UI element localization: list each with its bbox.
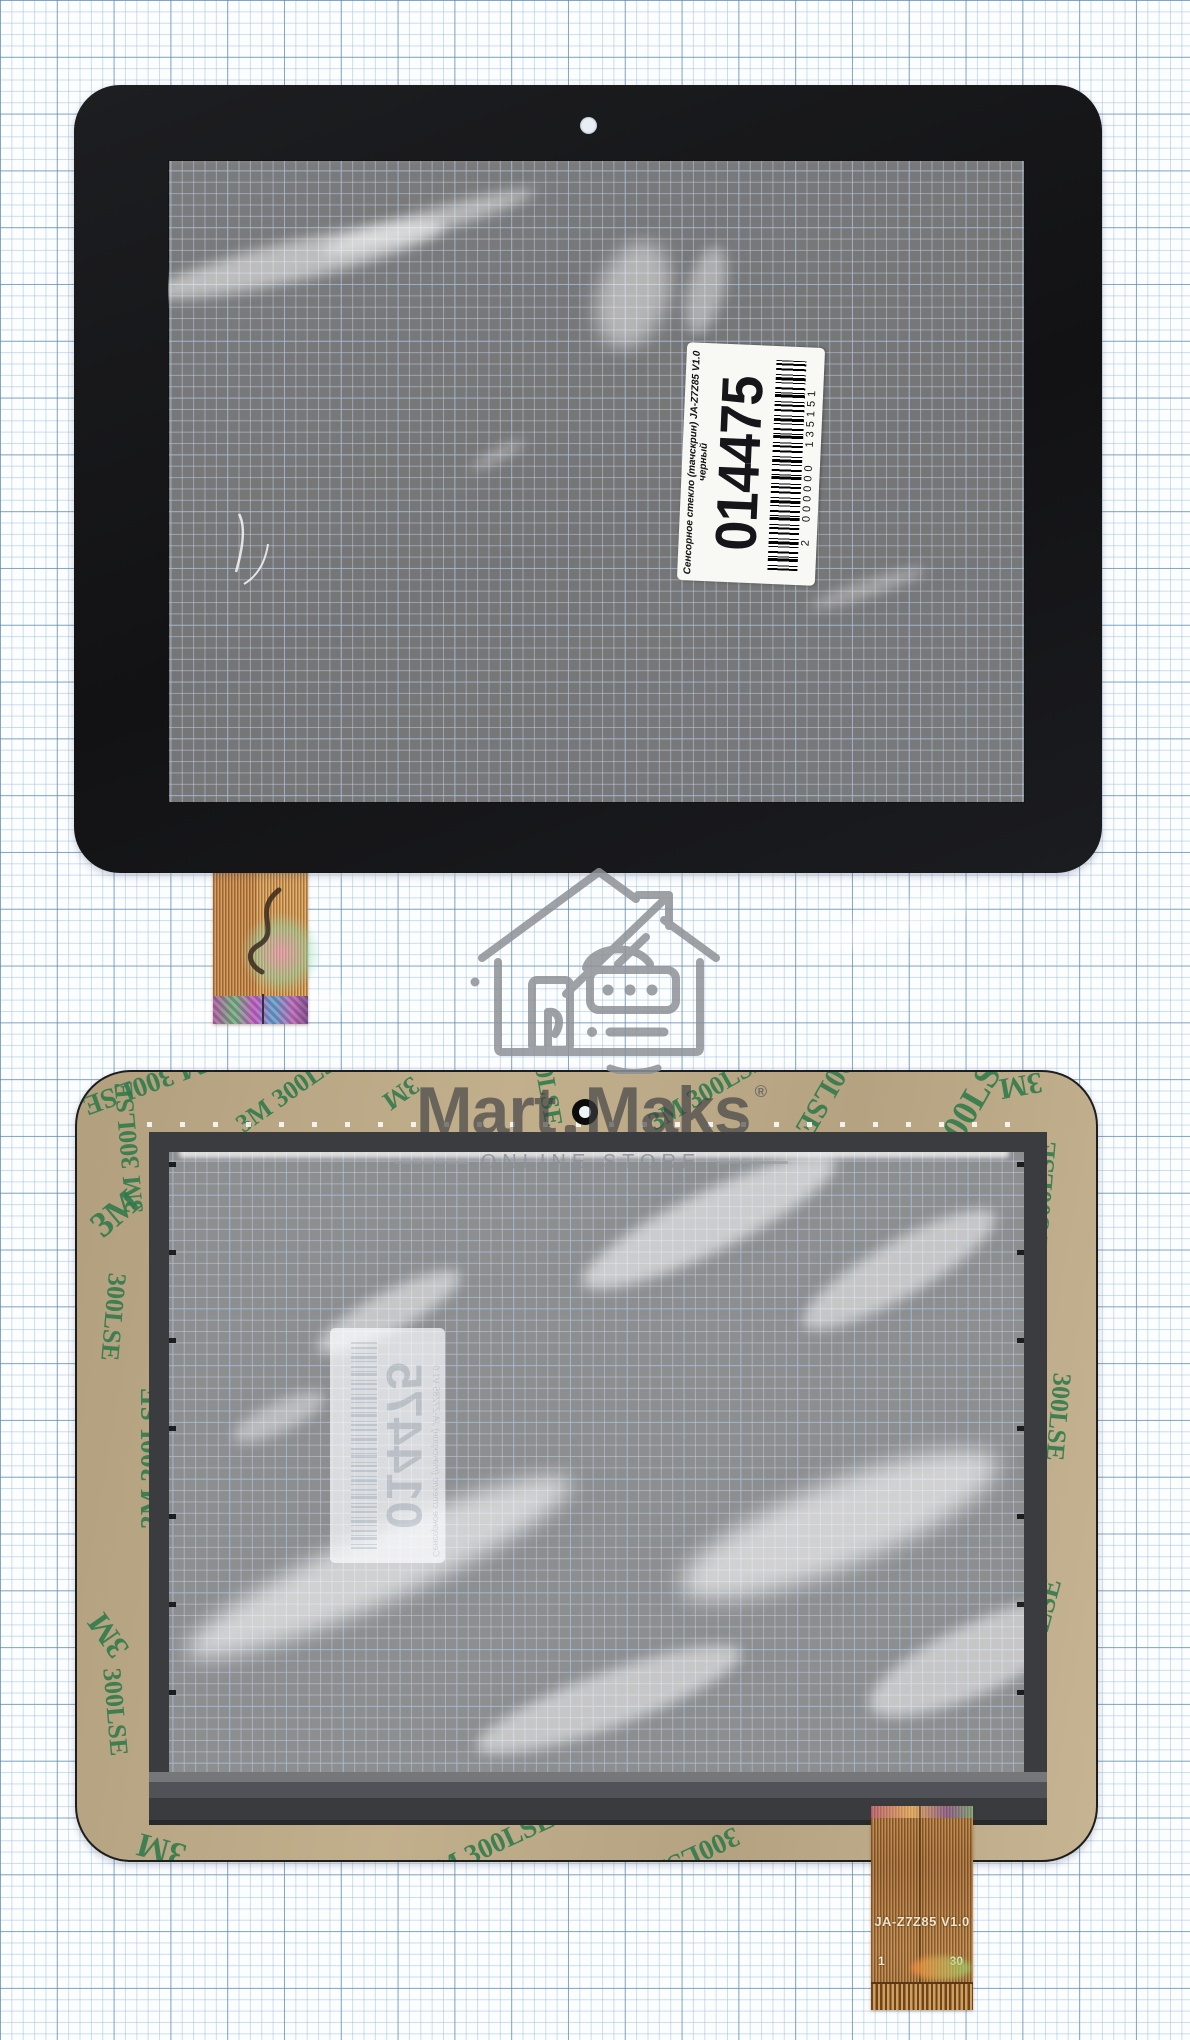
- tape-print: 300LSE: [96, 1667, 134, 1757]
- tape-print: 300LSE: [645, 1819, 745, 1862]
- connector-split: [262, 994, 264, 1024]
- tape-print: 3M 300LSE: [230, 1070, 355, 1139]
- cable-trace-squiggle: [231, 886, 301, 981]
- reflection-streak: [319, 180, 537, 264]
- front-flex-cable: [213, 858, 308, 1024]
- inventory-sticker-mirrored: Сенсорное стекло (тачскрин) JA-Z7Z85 V1.…: [330, 1328, 445, 1563]
- martmaks-house-icon: [468, 862, 730, 1074]
- cable-crease: [919, 1806, 921, 2010]
- reflection-streak: [665, 1421, 1012, 1627]
- product-photo-canvas: Сенсорное стекло (тачскрин) JA-Z7Z85 V1.…: [0, 0, 1190, 2040]
- touchscreen-front-panel: [74, 85, 1102, 873]
- tape-print: 3M: [996, 1070, 1045, 1106]
- scratch-reflection: [228, 510, 274, 605]
- inventory-sticker: Сенсорное стекло (тачскрин) JA-Z7Z85 V1.…: [677, 342, 825, 586]
- barcode-mirrored: [351, 1342, 377, 1549]
- reflection-streak: [678, 242, 735, 338]
- camera-hole-back: [572, 1099, 598, 1125]
- sticker-number-mirrored: 014475: [377, 1334, 431, 1557]
- electrode-ticks-right: [1017, 1162, 1024, 1762]
- sensor-frame: [149, 1132, 1047, 1825]
- reflection-streak: [570, 1152, 848, 1310]
- reflection-streak: [468, 1626, 750, 1772]
- reflection-streak: [800, 875, 999, 965]
- reflection-streak: [227, 1382, 330, 1451]
- sticker-title-mirrored: Сенсорное стекло (тачскрин) JA-Z7Z85 V1.…: [431, 1334, 441, 1557]
- glass-edge-glare: [179, 1152, 1009, 1158]
- tape-print: 300LSE: [94, 1272, 132, 1362]
- tape-print: 3M: [80, 1606, 137, 1665]
- back-glass-area: [169, 1152, 1024, 1772]
- electrode-ticks-left: [169, 1162, 176, 1762]
- reflection-streak: [583, 232, 684, 358]
- pin-1-label: 1: [878, 1954, 885, 1968]
- sticker-number: 014475: [704, 357, 775, 570]
- reflection-streak: [790, 1191, 1008, 1349]
- tape-print: 300LSE: [788, 1070, 868, 1142]
- bonding-fringe: [871, 1806, 973, 1818]
- back-flex-cable: JA-Z7Z85 V1.0 1 30: [871, 1806, 973, 2010]
- touchscreen-back-panel: 3M 300LSE 3M 300LSE 3M 300LSE 3M 300LSE …: [75, 1070, 1098, 1862]
- cable-connector-band: [213, 996, 308, 1024]
- tape-print: 3M: [377, 1070, 425, 1116]
- reflection-streak: [168, 207, 449, 313]
- reflection-streak: [855, 1575, 1024, 1740]
- tape-print: 3M: [133, 1824, 190, 1862]
- tape-print: 300LSE: [524, 1070, 569, 1129]
- cable-contact-fingers: [871, 1982, 973, 2010]
- reflection-streak: [808, 562, 927, 614]
- iridescence-glint: [911, 1956, 971, 1980]
- front-glass-area: [168, 160, 1025, 803]
- reflection-streak: [469, 437, 527, 474]
- tape-print: 3M 300LSE: [78, 1070, 223, 1121]
- cable-model-text: JA-Z7Z85 V1.0: [871, 1914, 973, 1929]
- camera-hole: [580, 117, 597, 134]
